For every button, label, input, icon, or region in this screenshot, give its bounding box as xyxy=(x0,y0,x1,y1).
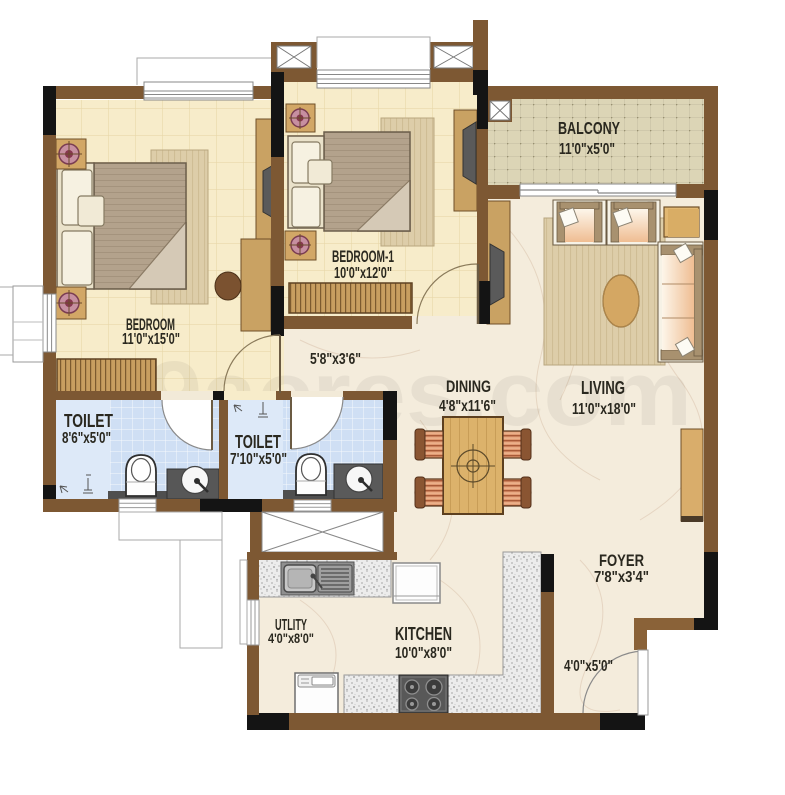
svg-text:11'0"x5'0": 11'0"x5'0" xyxy=(559,141,615,158)
svg-text:BEDROOM-1: BEDROOM-1 xyxy=(332,248,394,266)
svg-text:10'0"x8'0": 10'0"x8'0" xyxy=(395,645,452,662)
svg-text:BALCONY: BALCONY xyxy=(558,118,620,138)
svg-text:TOILET: TOILET xyxy=(235,432,281,452)
svg-text:KITCHEN: KITCHEN xyxy=(395,624,452,644)
svg-text:11'0"x15'0": 11'0"x15'0" xyxy=(122,331,180,348)
svg-text:TOILET: TOILET xyxy=(64,411,113,431)
svg-text:4'8"x11'6": 4'8"x11'6" xyxy=(439,398,496,415)
svg-text:FOYER: FOYER xyxy=(599,551,644,570)
svg-text:7'8"x3'4": 7'8"x3'4" xyxy=(594,569,649,586)
svg-text:11'0"x18'0": 11'0"x18'0" xyxy=(572,401,636,418)
svg-text:5'8"x3'6": 5'8"x3'6" xyxy=(310,351,361,368)
svg-text:4'0"x5'0": 4'0"x5'0" xyxy=(564,658,613,675)
svg-text:4'0"x8'0": 4'0"x8'0" xyxy=(268,630,314,646)
svg-text:8'6"x5'0": 8'6"x5'0" xyxy=(62,430,111,447)
svg-text:10'0"x12'0": 10'0"x12'0" xyxy=(334,265,392,282)
svg-text:7'10"x5'0": 7'10"x5'0" xyxy=(230,451,287,468)
svg-text:DINING: DINING xyxy=(446,378,491,396)
svg-text:LIVING: LIVING xyxy=(581,378,625,398)
